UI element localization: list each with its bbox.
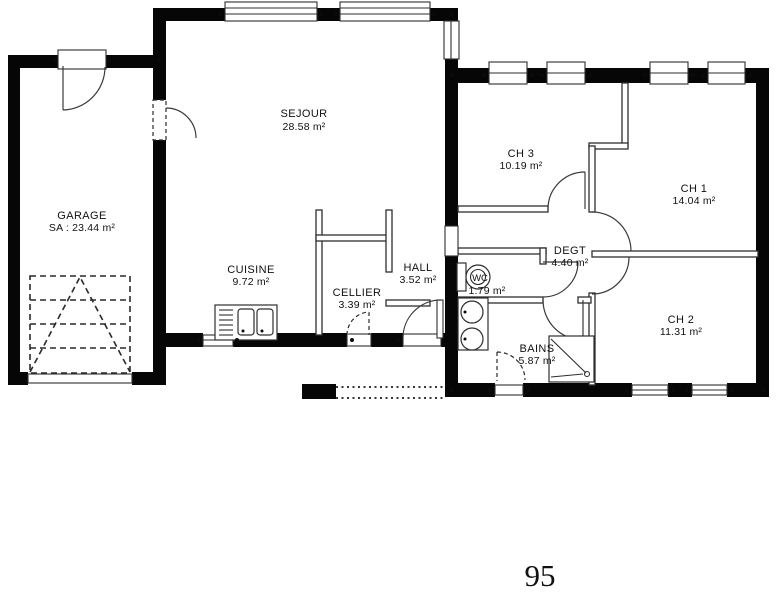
window-ch3-1 — [489, 62, 527, 84]
wall-segment — [8, 55, 60, 68]
label-ch1-area: 14.04 m² — [672, 195, 715, 207]
wall-segment — [153, 8, 225, 21]
window-ch3-2 — [547, 62, 585, 84]
garage-door-opening — [28, 374, 132, 383]
wall-cellier-hall — [386, 210, 392, 272]
label-ch2-area: 11.31 m² — [660, 326, 703, 338]
wall-segment — [153, 333, 203, 347]
garage-door-mechanism — [30, 276, 130, 373]
label-degt-area: 4.40 m² — [552, 257, 589, 269]
label-cuisine-area: 9.72 m² — [233, 276, 270, 288]
ch2-door — [592, 257, 629, 294]
floor-plan-page: GARAGE SA : 23.44 m² SEJOUR 28.58 m² CUI… — [0, 0, 782, 600]
window-bains — [495, 385, 523, 395]
wall-segment — [153, 8, 166, 100]
ch1-door — [592, 212, 631, 251]
label-degt-name: DEGT — [554, 245, 586, 257]
wall-segment — [756, 68, 769, 397]
doors — [58, 50, 631, 381]
wall-segment — [8, 55, 20, 385]
window-sejour-1 — [225, 2, 317, 21]
window-sejour-side — [444, 21, 459, 59]
garage-service-door — [58, 50, 106, 110]
label-cuisine-name: CUISINE — [227, 264, 274, 276]
wall-segment — [445, 83, 458, 226]
wall-segment — [153, 140, 166, 385]
label-ch2-name: CH 2 — [668, 314, 695, 326]
porch-pillar — [302, 384, 336, 399]
entrance-door — [403, 300, 443, 346]
porch-outline — [336, 387, 445, 398]
label-garage-name: GARAGE — [57, 210, 106, 222]
window-ch1-1 — [650, 62, 688, 84]
kitchen-sink — [215, 305, 277, 340]
wall-segment — [8, 372, 28, 385]
hall-degt-passage — [445, 226, 458, 256]
wall-segment — [688, 68, 708, 83]
wall-segment — [523, 383, 632, 397]
label-wc-name: WC — [472, 273, 488, 284]
label-sejour-name: SEJOUR — [280, 108, 327, 120]
wall-hall-spur — [386, 300, 430, 306]
label-ch3-name: CH 3 — [508, 148, 535, 160]
wall-ch3-bottom — [458, 206, 548, 212]
label-cellier-area: 3.39 m² — [339, 299, 376, 311]
shower — [549, 336, 594, 382]
label-cellier-name: CELLIER — [333, 287, 382, 299]
label-hall-name: HALL — [403, 262, 432, 274]
ch3-door — [548, 172, 585, 209]
label-ch1-name: CH 1 — [681, 183, 708, 195]
wall-ch1-ch2 — [592, 251, 758, 257]
window-ch1-2 — [708, 62, 745, 84]
label-garage-area: SA : 23.44 m² — [49, 222, 116, 234]
wall-bains-jamb — [578, 297, 591, 303]
wall-ch3-ch1-lower — [589, 146, 595, 212]
label-bains-area: 5.87 m² — [519, 355, 556, 367]
floor-plan-drawing: GARAGE SA : 23.44 m² SEJOUR 28.58 m² CUI… — [0, 0, 782, 600]
wall-wc-top — [458, 248, 546, 254]
label-ch3-area: 10.19 m² — [499, 160, 542, 172]
sheet-number: 95 — [525, 558, 556, 593]
window-ch2-1 — [632, 385, 668, 395]
label-bains-name: BAINS — [519, 343, 554, 355]
wall-segment — [104, 55, 153, 68]
window-sejour-2 — [340, 2, 430, 21]
label-sejour-area: 28.58 m² — [282, 121, 325, 133]
label-wc-area: 1.79 m² — [469, 285, 506, 297]
wall-cellier-top — [316, 235, 390, 241]
wall-cuisine-cellier — [316, 210, 322, 335]
double-washbasin — [458, 298, 488, 350]
wall-segment — [585, 68, 650, 83]
window-ch2-2 — [692, 385, 727, 395]
wall-ch3-ch1-upper — [622, 83, 628, 147]
label-hall-area: 3.52 m² — [400, 274, 437, 286]
garage-house-door-dashed — [153, 100, 196, 140]
wall-segment — [445, 256, 458, 397]
bains-door — [543, 300, 583, 340]
wall-segment — [527, 68, 547, 83]
